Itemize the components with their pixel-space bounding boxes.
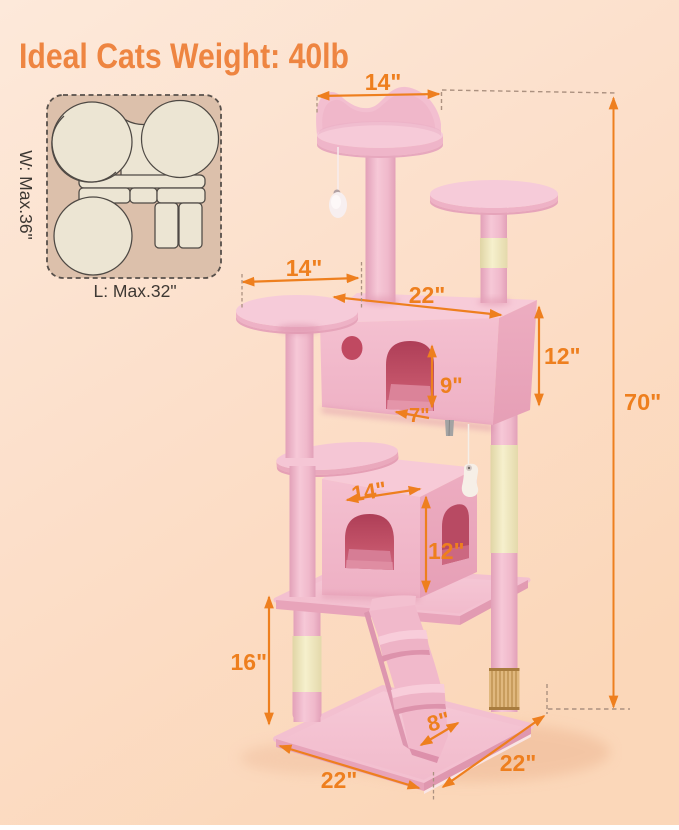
svg-text:Ideal Cats Weight: 40lb: Ideal Cats Weight: 40lb bbox=[19, 37, 349, 76]
svg-text:14": 14" bbox=[365, 69, 402, 95]
svg-text:22": 22" bbox=[321, 767, 358, 793]
svg-text:16": 16" bbox=[231, 649, 268, 675]
svg-text:22": 22" bbox=[500, 750, 537, 776]
svg-text:L: Max.32": L: Max.32" bbox=[93, 281, 176, 301]
svg-text:14": 14" bbox=[286, 255, 323, 281]
svg-text:9": 9" bbox=[440, 373, 463, 398]
svg-text:22": 22" bbox=[409, 282, 446, 308]
svg-text:70": 70" bbox=[624, 389, 661, 415]
svg-text:12": 12" bbox=[544, 343, 581, 369]
svg-text:7": 7" bbox=[409, 405, 430, 427]
svg-text:12": 12" bbox=[428, 538, 465, 564]
svg-text:W: Max.36": W: Max.36" bbox=[16, 150, 36, 240]
